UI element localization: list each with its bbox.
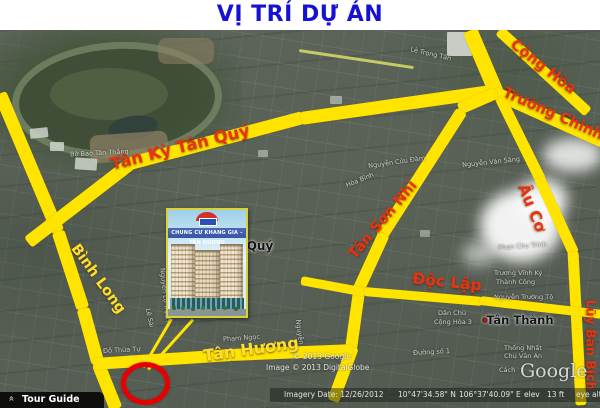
apartment-tower-right xyxy=(220,244,243,301)
inset-ground xyxy=(168,309,246,316)
street-label: Cách xyxy=(499,366,515,374)
street-label: Đường số 1 xyxy=(413,347,450,357)
apartment-tower-middle xyxy=(195,250,220,301)
google-logo-watermark: Google xyxy=(520,360,588,382)
copyright-google: © 2013 Google xyxy=(293,352,351,361)
building-roof xyxy=(258,150,268,157)
street-label: Nguyễn Văn Săng xyxy=(462,155,521,169)
road-binh-long xyxy=(77,306,105,364)
building-roof xyxy=(50,142,64,151)
elev-label: elev xyxy=(524,390,540,399)
cloud xyxy=(462,242,496,266)
dirt-patch xyxy=(158,38,214,64)
building-roof xyxy=(420,230,430,237)
racetrack-infield xyxy=(50,68,168,120)
elev-value: 13 ft xyxy=(547,390,564,399)
latitude: 10°47'34.58" N xyxy=(398,390,456,399)
podium-glass-base xyxy=(170,298,244,309)
street-label: Thành Công xyxy=(496,278,535,286)
road-tan-son-nhi xyxy=(345,290,365,350)
place-label-tan-thanh: Tân Thành xyxy=(486,313,553,327)
street-label: Cộng Hòa 3 xyxy=(434,318,472,326)
inset-title-banner: CHUNG CƯ KHANG GIA – TÂN HƯƠNG xyxy=(168,228,246,238)
site-marker-circle xyxy=(121,362,170,405)
imagery-date: Imagery Date: 12/26/2012 xyxy=(284,390,383,399)
street-label: Lê Sài xyxy=(144,308,156,329)
copyright-digitalglobe: Image © 2013 DigitalGlobe xyxy=(266,363,369,372)
building-roof xyxy=(75,157,98,171)
street-label: Đỗ Thừa Tự xyxy=(103,345,141,355)
status-bar: Imagery Date: 12/26/2012 10°47'34.58" N … xyxy=(270,388,600,402)
street-label: Trương Vĩnh Ký xyxy=(494,269,542,277)
road-minor xyxy=(299,49,414,69)
street-label: Dân Chủ xyxy=(438,309,466,317)
street-label: Nguyễn Trường Tộ xyxy=(494,293,553,301)
project-inset-image: CHUNG CƯ KHANG GIA – TÂN HƯƠNG xyxy=(166,208,248,318)
road-label-doc-lap: Độc Lập xyxy=(411,269,482,294)
page-title: VỊ TRÍ DỰ ÁN xyxy=(0,2,600,27)
logo-mark-icon xyxy=(199,218,217,226)
longitude: 106°37'40.09" E xyxy=(459,390,521,399)
tour-guide-bar[interactable]: « Tour Guide xyxy=(0,392,104,408)
building-roof xyxy=(330,96,342,104)
place-label-quy: Quý xyxy=(247,239,274,253)
apartment-tower-left xyxy=(171,244,195,301)
street-label: Chu Văn An xyxy=(504,352,542,360)
street-label: Lê Trọng Tấn xyxy=(410,45,452,62)
slide: VỊ TRÍ DỰ ÁN xyxy=(0,0,600,408)
street-label: Thống Nhất xyxy=(504,344,542,352)
expand-chevrons-icon: « xyxy=(6,395,17,401)
tree-row xyxy=(172,306,176,310)
tour-guide-label: Tour Guide xyxy=(22,394,80,405)
developer-logo xyxy=(192,212,222,226)
street-label: Hòa Bình xyxy=(345,171,375,189)
road-label-cong-hoa: Cộng Hòa xyxy=(507,37,579,98)
eye-alt-label: eye alt xyxy=(576,390,600,399)
satellite-map[interactable]: Bờ Bao Tân Thắng Lê Trọng Tấn Nguyễn Cửu… xyxy=(0,30,600,408)
building-roof xyxy=(30,127,49,139)
